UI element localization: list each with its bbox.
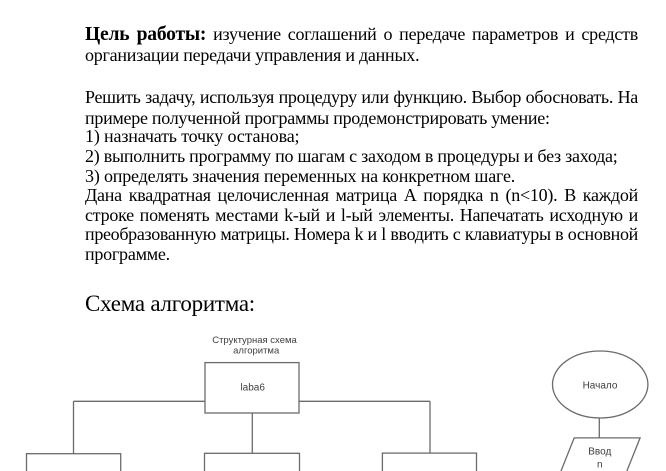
svg-text:Начало: Начало (583, 381, 618, 392)
svg-text:Ввод: Ввод (588, 447, 611, 458)
svg-text:laba6: laba6 (240, 383, 265, 394)
svg-text:алгоритма: алгоритма (233, 346, 280, 357)
svg-text:n: n (597, 460, 603, 471)
svg-text:Структурная схема: Структурная схема (212, 335, 297, 346)
